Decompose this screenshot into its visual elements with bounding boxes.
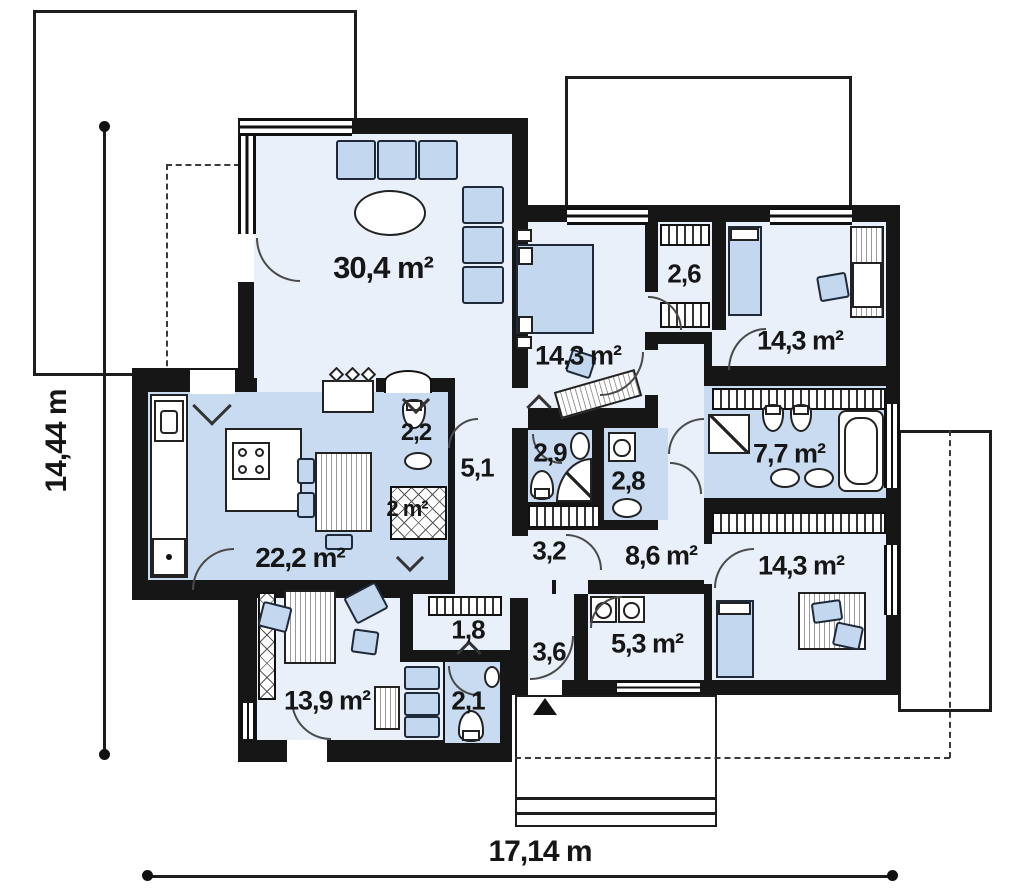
sink-icon [612,498,642,518]
wardrobe-icon [660,224,710,246]
roof-overhang-line [949,430,951,758]
cooktop-icon [232,442,270,480]
bathtub-inner-icon [844,417,878,485]
roof-overhang-line [515,757,950,759]
window-bathroom-east [884,404,900,488]
roof-overhang-line [166,164,168,376]
toilet-icon [530,470,554,500]
sofa-icon [404,666,440,690]
room-label-wc-21: 2,1 [451,686,484,717]
sofa-icon [377,140,417,180]
burner-icon [255,448,264,457]
opening-hall-utility [556,580,588,594]
window-bedroom-3-east [884,545,900,615]
opening-bed3-door [704,544,712,584]
window-living-corner-left [238,136,256,234]
dimension-dot [99,749,110,760]
room-label-bedroom-2: 14,3 m² [757,326,843,357]
chair-icon [297,458,315,484]
opening-51-junction [512,388,528,428]
pillow-icon [718,602,751,615]
burner-icon [238,465,247,474]
sofa-icon [418,140,458,180]
terrace-north [565,76,852,209]
chaise-icon [462,266,504,304]
room-label-hall-86: 8,6 m² [625,541,697,572]
wardrobe-icon [712,512,886,534]
room-label-wardrobe-26: 2,6 [667,259,700,290]
entrance-arrow-icon [533,698,557,715]
window-office [240,703,256,739]
door-gap-front [528,680,562,695]
room-label-living: 30,4 m² [333,250,433,286]
sink-icon [570,432,590,460]
window-living-corner-top [240,118,352,136]
opening-hall-entry [528,580,552,594]
room-label-bedroom-1: 14,3 m² [535,341,621,372]
room-label-wc-28: 2,8 [611,466,644,497]
sink-icon [770,468,800,488]
dryer-icon [618,596,645,623]
chair-icon [297,492,315,518]
opening-bed1-door [645,350,658,395]
terrace-east [898,430,992,712]
dimension-dot [142,870,153,881]
opening-51-corridor [512,536,528,598]
desk-icon [284,590,336,664]
door-gap-living-terrace [238,234,254,282]
room-label-closet-2m: 2 m² [386,496,427,522]
sofa-icon [336,140,376,180]
room-hallway-51 [455,378,512,598]
nightstand-icon [516,336,532,349]
opening-bed2-door [712,330,726,366]
burner-icon [238,448,247,457]
desk-icon [852,262,882,308]
window-utility [617,680,700,695]
room-label-hallway: 5,1 [460,453,493,484]
dimension-label-height: 14,44 m [40,389,74,492]
pillow-icon [518,247,533,265]
pillow-icon [518,316,533,334]
fireplace-icon [384,370,432,393]
room-label-bathroom-77: 7,7 m² [753,439,825,470]
room-label-wc-small: 2,2 [401,419,431,447]
window-bedroom-1 [567,207,648,225]
kitchen-sink-icon [160,410,178,434]
sofa-icon [404,692,440,716]
porch-step-line [515,797,717,800]
dining-table-icon [315,452,372,532]
dimension-label-width: 17,14 m [488,835,591,869]
wardrobe-icon [428,596,502,616]
nightstand-icon [516,229,532,242]
monitor-icon [811,599,844,624]
chaise-icon [462,186,504,224]
room-label-bedroom-3: 14,3 m² [758,551,844,582]
coffee-table-icon [350,628,379,655]
window-bedroom-2 [770,207,852,225]
sofa-icon [404,716,440,738]
room-label-corridor-32: 3,2 [532,536,565,567]
shower-icon [708,414,750,454]
fridge-dot-icon [166,554,172,560]
room-label-kitchen: 22,2 m² [255,542,345,574]
dimension-line-bottom [147,875,893,878]
floor-plan-canvas: 14,44 m 17,14 m [0,0,1024,893]
door-gap-office-garden [287,740,327,762]
rug-icon [354,190,426,236]
chaise-icon [462,226,504,264]
sink-icon [804,468,834,488]
sink-icon [484,666,500,688]
room-label-entry: 3,6 [532,637,565,668]
room-label-bathroom-29: 2,9 [533,438,566,469]
dimension-line-left [103,127,106,755]
room-label-utility: 5,3 m² [611,629,683,660]
chair-icon [816,272,850,303]
wardrobe-icon [528,505,600,528]
roof-overhang-line [166,164,240,166]
pillow-icon [730,228,759,241]
dimension-dot [887,870,898,881]
porch-step-line [515,812,717,815]
tv-stand-icon [374,686,400,730]
sink-icon [404,452,432,470]
burner-icon [255,465,264,474]
room-label-office: 13,9 m² [284,686,370,717]
room-label-closet-18: 1,8 [451,615,484,646]
dimension-dot [99,121,110,132]
sideboard-icon [322,380,374,413]
washing-machine-icon [608,432,636,462]
